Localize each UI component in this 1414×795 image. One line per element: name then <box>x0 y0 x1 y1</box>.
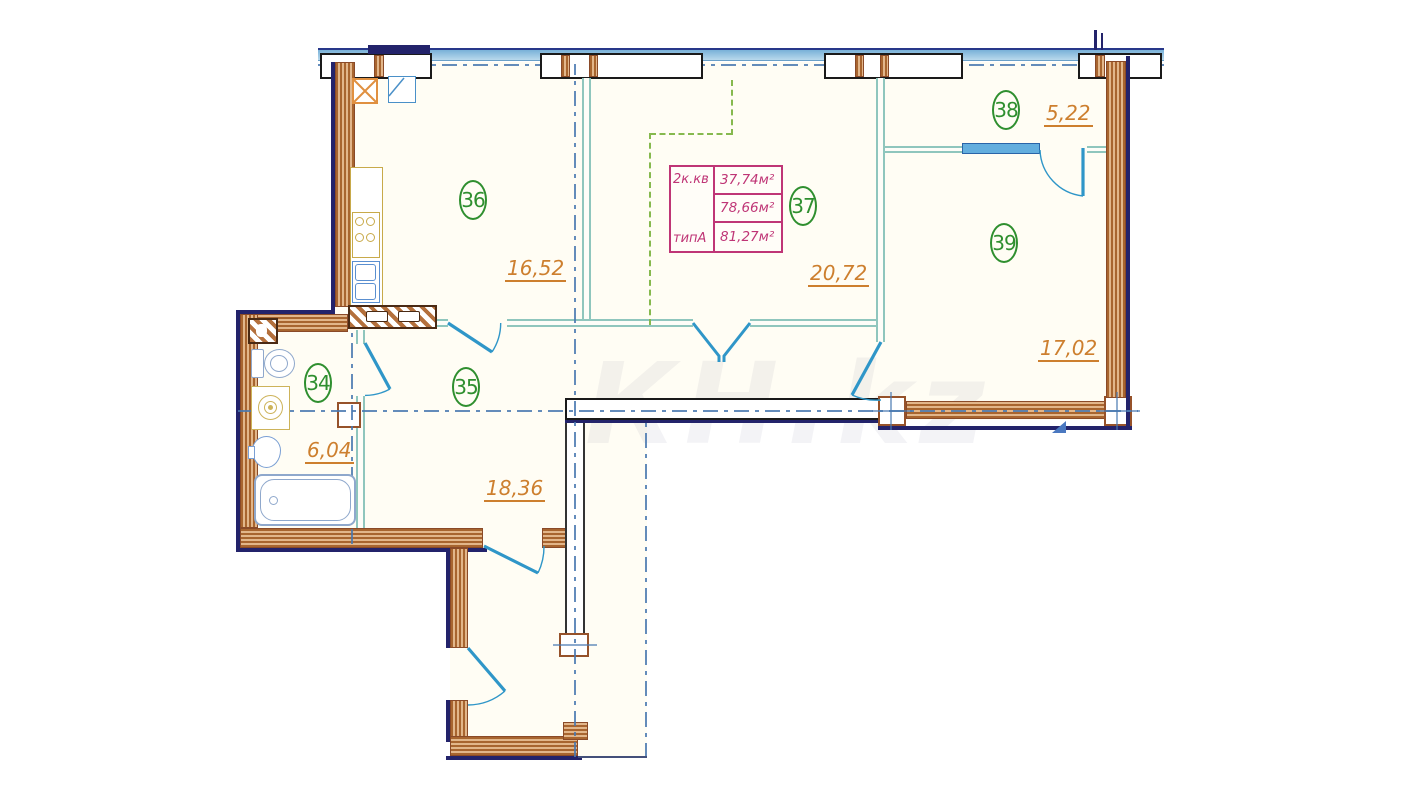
room-39-area: 17,02 <box>1038 338 1099 362</box>
room-35-number: 35 <box>452 367 480 407</box>
hall-bottom-wall <box>565 398 880 420</box>
landing-bottom-line <box>578 756 647 758</box>
total-area-value: 81,27м² <box>715 223 781 251</box>
stove-burner-2 <box>366 217 375 226</box>
kitchen-sink-basin-2 <box>355 283 376 300</box>
pier-mark-5 <box>880 55 889 77</box>
zone-dash-horizontal <box>650 133 732 135</box>
corridor-bottom-edge <box>446 756 582 760</box>
corridor-left-wall-2 <box>450 700 468 738</box>
balcony-sill-left <box>884 146 962 153</box>
partition-bath-top <box>356 330 365 344</box>
partition-hall-right <box>750 319 876 327</box>
right-wall <box>1106 61 1126 398</box>
bath-bottom-wall <box>240 528 483 548</box>
stove-burner-1 <box>355 217 364 226</box>
bath-vent-hole <box>256 324 267 337</box>
bath-door-pier <box>337 402 361 428</box>
apartment-type-label: 2к.кв <box>673 172 711 187</box>
partition-37-39 <box>876 78 885 342</box>
interior-corridor <box>450 420 647 757</box>
room-39-number: 39 <box>990 223 1018 263</box>
info-table-right-column: 37,74м² 78,66м² 81,27м² <box>715 167 781 251</box>
room-37-number: 37 <box>789 186 817 226</box>
pier-mark-4 <box>855 55 864 77</box>
bath-sink-faucet <box>248 446 255 459</box>
wall-pier-c <box>824 53 963 79</box>
bathtub-drain <box>269 496 278 505</box>
room-34-area: 6,04 <box>305 440 354 464</box>
corridor-bottom-wall <box>450 736 578 756</box>
usable-area-value: 78,66м² <box>715 195 781 223</box>
roof-tick-1 <box>1094 30 1097 50</box>
partition-hall-stub <box>437 319 448 327</box>
right-wall-edge <box>1126 56 1130 430</box>
pier-mark-3 <box>589 55 598 77</box>
top-axis-line <box>318 64 1164 66</box>
room-34-number: 34 <box>304 363 332 403</box>
pier-mark-6 <box>1095 55 1105 77</box>
partition-36-37 <box>582 78 591 323</box>
toilet-bowl-inner <box>270 355 288 372</box>
stove-burner-4 <box>366 233 375 242</box>
room-38-area: 5,22 <box>1044 103 1093 127</box>
pier-mark-2 <box>561 55 570 77</box>
vent-x-box <box>352 78 378 104</box>
hall-bottom-edge <box>565 420 880 423</box>
axis-horizontal-main <box>238 410 1138 412</box>
apartment-plan-type-label: типА <box>673 231 711 246</box>
zone-dash-vertical <box>649 133 651 325</box>
stove-burner-3 <box>355 233 364 242</box>
washer-drum-center <box>268 405 273 410</box>
landing-right-axis <box>645 420 647 758</box>
kitchen-vent-shaft <box>348 305 437 329</box>
corridor-left-wall-1 <box>450 548 468 648</box>
room-35-area: 18,36 <box>484 478 545 502</box>
pier-a-cap <box>368 45 430 54</box>
balcony-window <box>962 143 1040 154</box>
toilet-tank <box>251 349 264 378</box>
top-window-band <box>318 48 1164 61</box>
room-36-number: 36 <box>459 180 487 220</box>
roof-tick-2 <box>1101 33 1103 50</box>
floor-plan: КН.kz <box>0 0 1414 795</box>
vent-slot-1 <box>366 311 388 322</box>
hall-bottom-stub <box>542 528 567 548</box>
pier-mark-1 <box>374 55 384 77</box>
room-37-area: 20,72 <box>808 263 869 287</box>
balcony-sill-right <box>1087 146 1106 153</box>
vent-slot-2 <box>398 311 420 322</box>
room-38-number: 38 <box>992 90 1020 130</box>
partition-hall-mid <box>507 319 693 327</box>
fridge <box>388 76 416 103</box>
room-36-area: 16,52 <box>505 258 566 282</box>
living-area-value: 37,74м² <box>715 167 781 195</box>
zone-dash-vertical-top <box>731 80 733 135</box>
axis-vertical-main <box>574 64 576 757</box>
info-table-left-column: 2к.кв типА <box>671 167 715 251</box>
kitchen-sink-basin-1 <box>355 264 376 281</box>
room39-bottom-edge <box>878 426 1132 430</box>
apartment-info-table: 2к.кв типА 37,74м² 78,66м² 81,27м² <box>669 165 783 253</box>
